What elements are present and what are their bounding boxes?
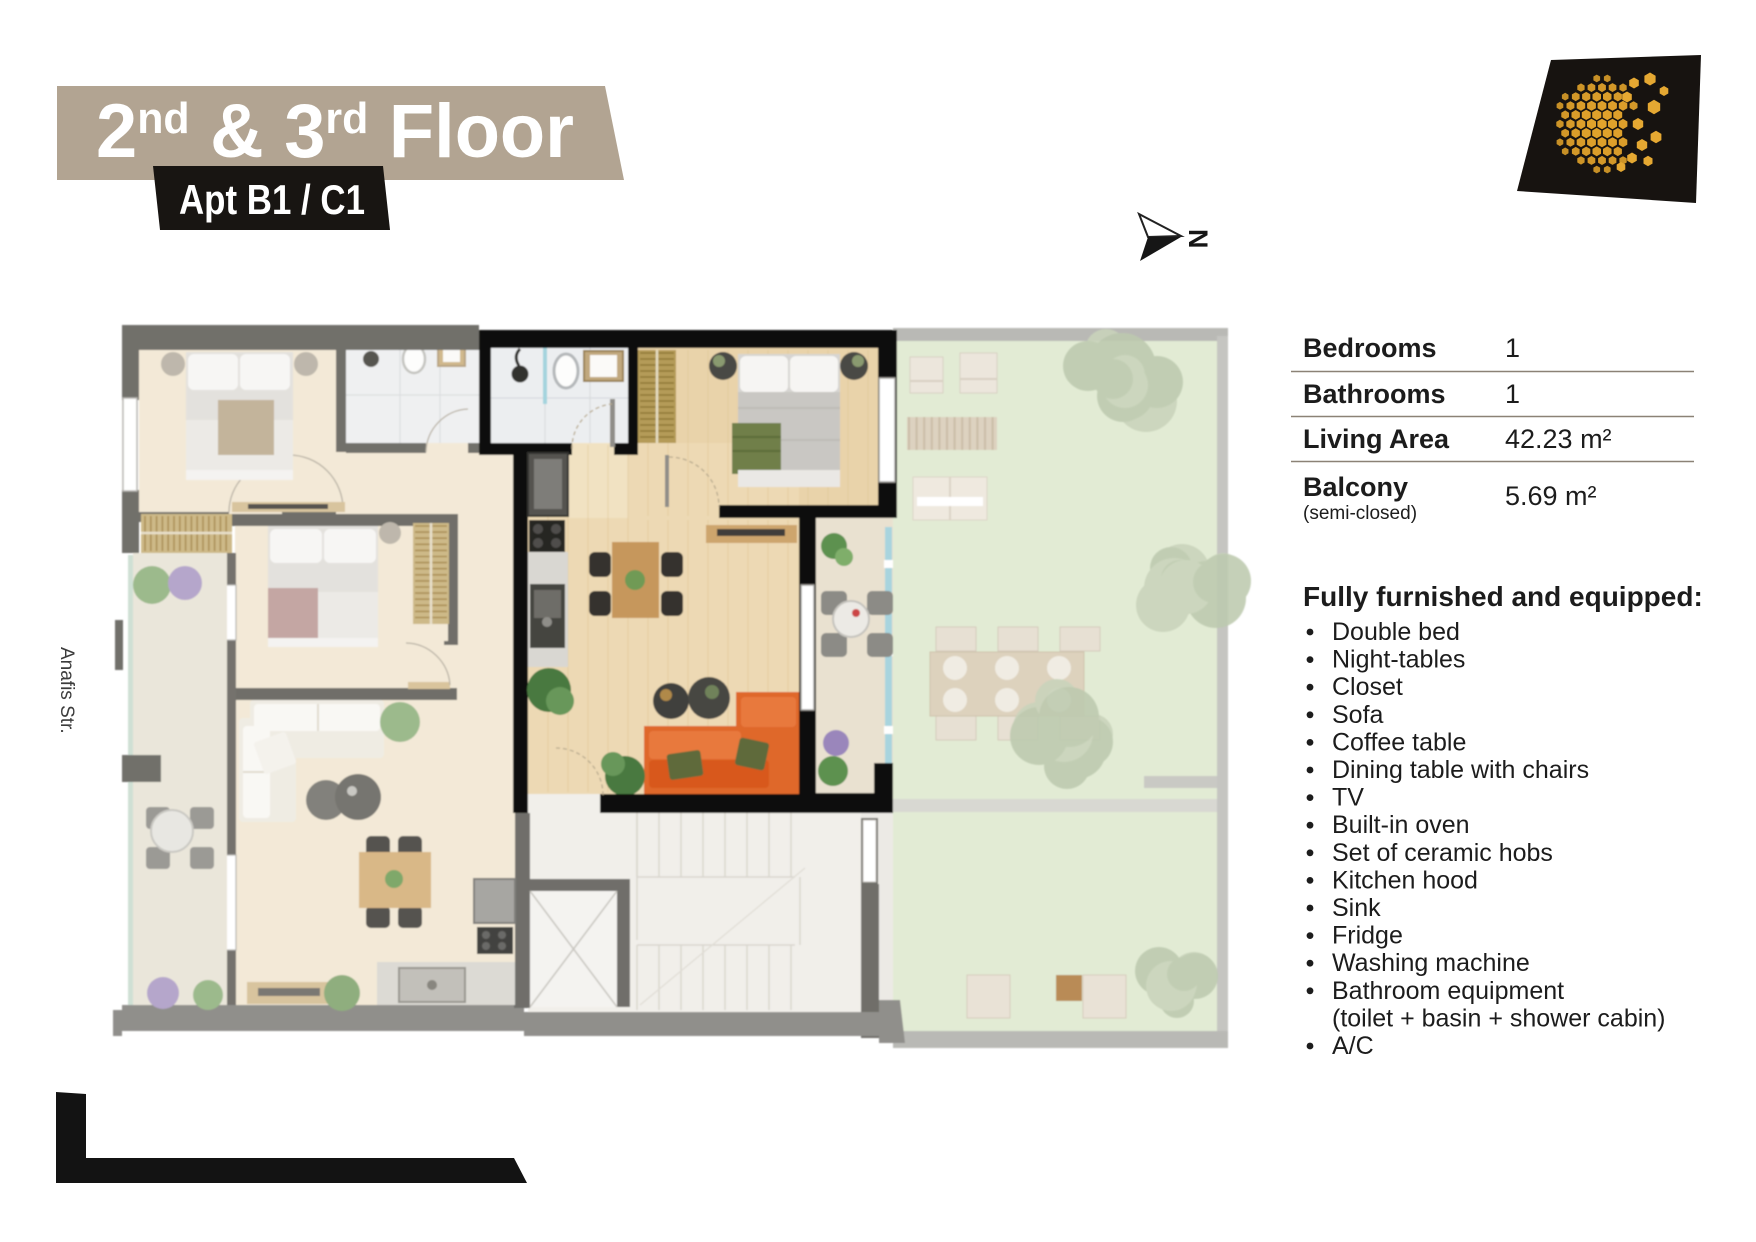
svg-text:Set of ceramic hobs: Set of ceramic hobs — [1332, 839, 1553, 867]
svg-text:Kitchen hood: Kitchen hood — [1332, 866, 1478, 894]
svg-text:TV: TV — [1332, 784, 1364, 812]
svg-text:Apt B1 / C1: Apt B1 / C1 — [179, 176, 365, 223]
svg-text:(toilet + basin + shower cabin: (toilet + basin + shower cabin) — [1332, 1004, 1666, 1032]
svg-text:Closet: Closet — [1332, 673, 1403, 701]
svg-text:Sofa: Sofa — [1332, 701, 1384, 729]
svg-text:Bathrooms: Bathrooms — [1303, 379, 1446, 409]
svg-text:Balcony: Balcony — [1303, 472, 1408, 502]
svg-text:Bedrooms: Bedrooms — [1303, 333, 1437, 363]
svg-text:Coffee table: Coffee table — [1332, 728, 1466, 756]
svg-text:Bathroom equipment: Bathroom equipment — [1332, 977, 1564, 1005]
svg-text:Sink: Sink — [1332, 894, 1381, 922]
svg-text:5.69 m²: 5.69 m² — [1505, 481, 1597, 511]
svg-text:42.23 m²: 42.23 m² — [1505, 424, 1612, 454]
svg-text:A/C: A/C — [1332, 1032, 1374, 1060]
svg-text:Living Area: Living Area — [1303, 424, 1450, 454]
svg-text:1: 1 — [1505, 333, 1520, 363]
svg-text:Built-in oven: Built-in oven — [1332, 811, 1470, 839]
svg-text:N: N — [1183, 229, 1213, 249]
svg-text:Dining table with chairs: Dining table with chairs — [1332, 756, 1589, 784]
svg-text:Night-tables: Night-tables — [1332, 646, 1465, 674]
svg-text:Double bed: Double bed — [1332, 618, 1460, 646]
svg-text:Fully furnished and equipped:: Fully furnished and equipped: — [1303, 581, 1703, 612]
svg-text:1: 1 — [1505, 379, 1520, 409]
svg-text:(semi-closed): (semi-closed) — [1303, 503, 1417, 524]
svg-text:Fridge: Fridge — [1332, 922, 1403, 950]
svg-text:Anafis Str.: Anafis Str. — [56, 647, 77, 734]
svg-text:Washing machine: Washing machine — [1332, 949, 1530, 977]
